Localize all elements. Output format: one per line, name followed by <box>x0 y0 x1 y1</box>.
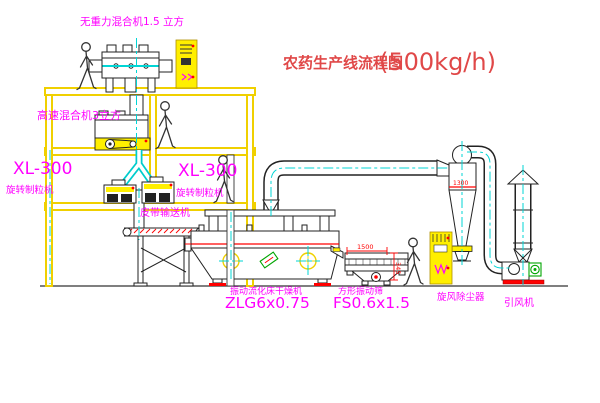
label-dryer-model: ZLG6x0.75 <box>225 294 310 312</box>
label-granulator-left-model: XL-300 <box>13 159 72 179</box>
flow-diagram: 无重力混合机1.5 立方 农药生产线流程图 (500kg/h) 高速混合机3立方… <box>0 0 600 403</box>
control-cabinet-top <box>176 40 197 88</box>
page-title-capacity: (500kg/h) <box>379 48 496 76</box>
label-granulator-right-name: 旋转制粒机 <box>176 187 224 199</box>
label-zero-gravity-mixer: 无重力混合机1.5 立方 <box>80 15 184 28</box>
person-figure-floor2 <box>156 102 175 149</box>
dim-sieve-length: 1500 <box>357 243 374 251</box>
control-cabinet-right <box>430 232 452 284</box>
granulator-left <box>104 180 136 203</box>
cad-drawing-page: 无重力混合机1.5 立方 农药生产线流程图 (500kg/h) 高速混合机3立方… <box>0 0 600 403</box>
label-granulator-right-model: XL-300 <box>178 161 237 181</box>
label-fan: 引风机 <box>504 296 534 309</box>
fluid-bed-dryer <box>185 210 339 286</box>
label-cyclone: 旋风除尘器 <box>437 291 485 303</box>
dim-sieve-height: 345 <box>394 262 402 274</box>
zero-gravity-mixer <box>89 45 172 92</box>
label-high-speed-mixer: 高速混合机3立方 <box>37 108 121 122</box>
high-speed-mixer <box>95 95 150 150</box>
label-granulator-left-name: 旋转制粒机 <box>6 184 54 196</box>
label-sieve-model: FS0.6x1.5 <box>333 294 410 312</box>
dim-cyclone: 1300 <box>453 180 468 187</box>
label-belt-conveyor: 皮带输送机 <box>140 206 190 219</box>
